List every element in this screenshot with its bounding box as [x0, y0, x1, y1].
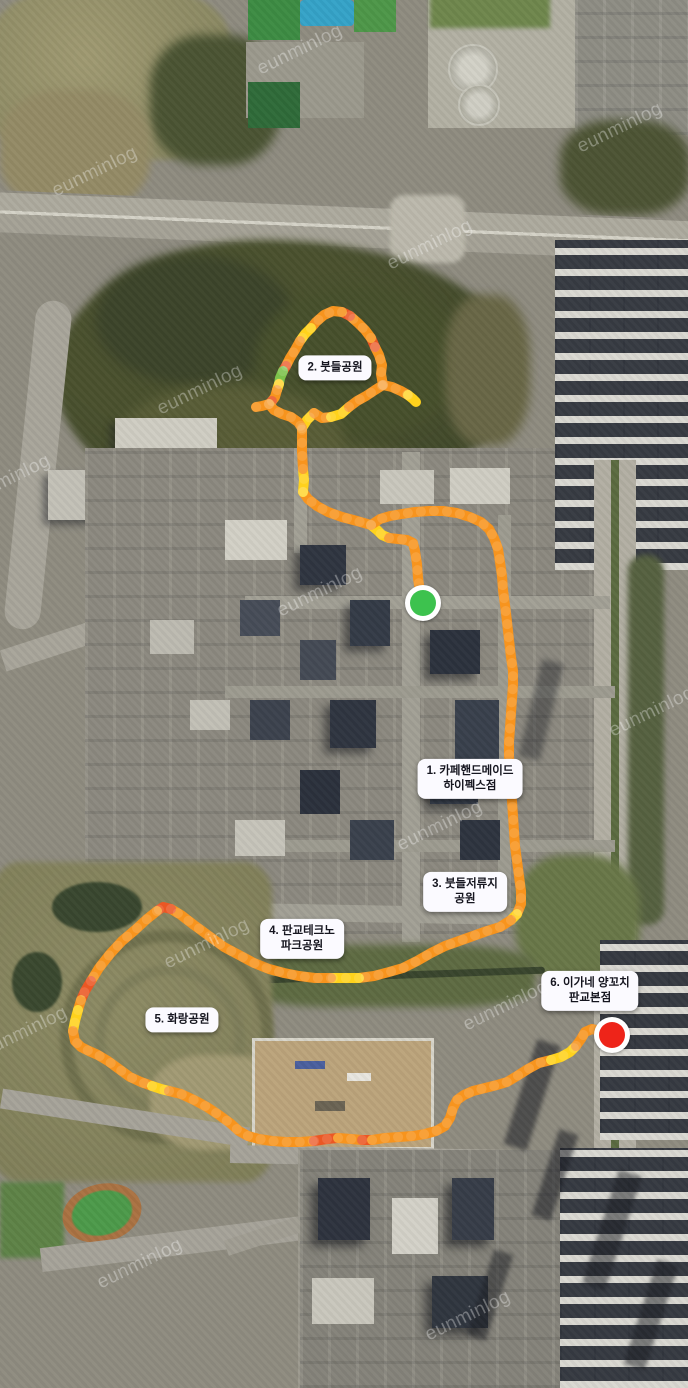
route-segment-orange: [375, 347, 383, 385]
route-bead-texture: [371, 511, 521, 914]
route-bead-texture: [171, 909, 331, 978]
map-screenshot: 1. 카페핸드메이드하이펙스점2. 붓들공원3. 붓들저류지공원4. 판교테크노…: [0, 0, 688, 1388]
start-dot: [410, 590, 436, 616]
route-overlay: [0, 0, 688, 1388]
route-segment-orange: [171, 909, 331, 978]
route-end-marker: [594, 1017, 630, 1053]
end-dot: [599, 1022, 625, 1048]
route-start-marker: [405, 585, 441, 621]
